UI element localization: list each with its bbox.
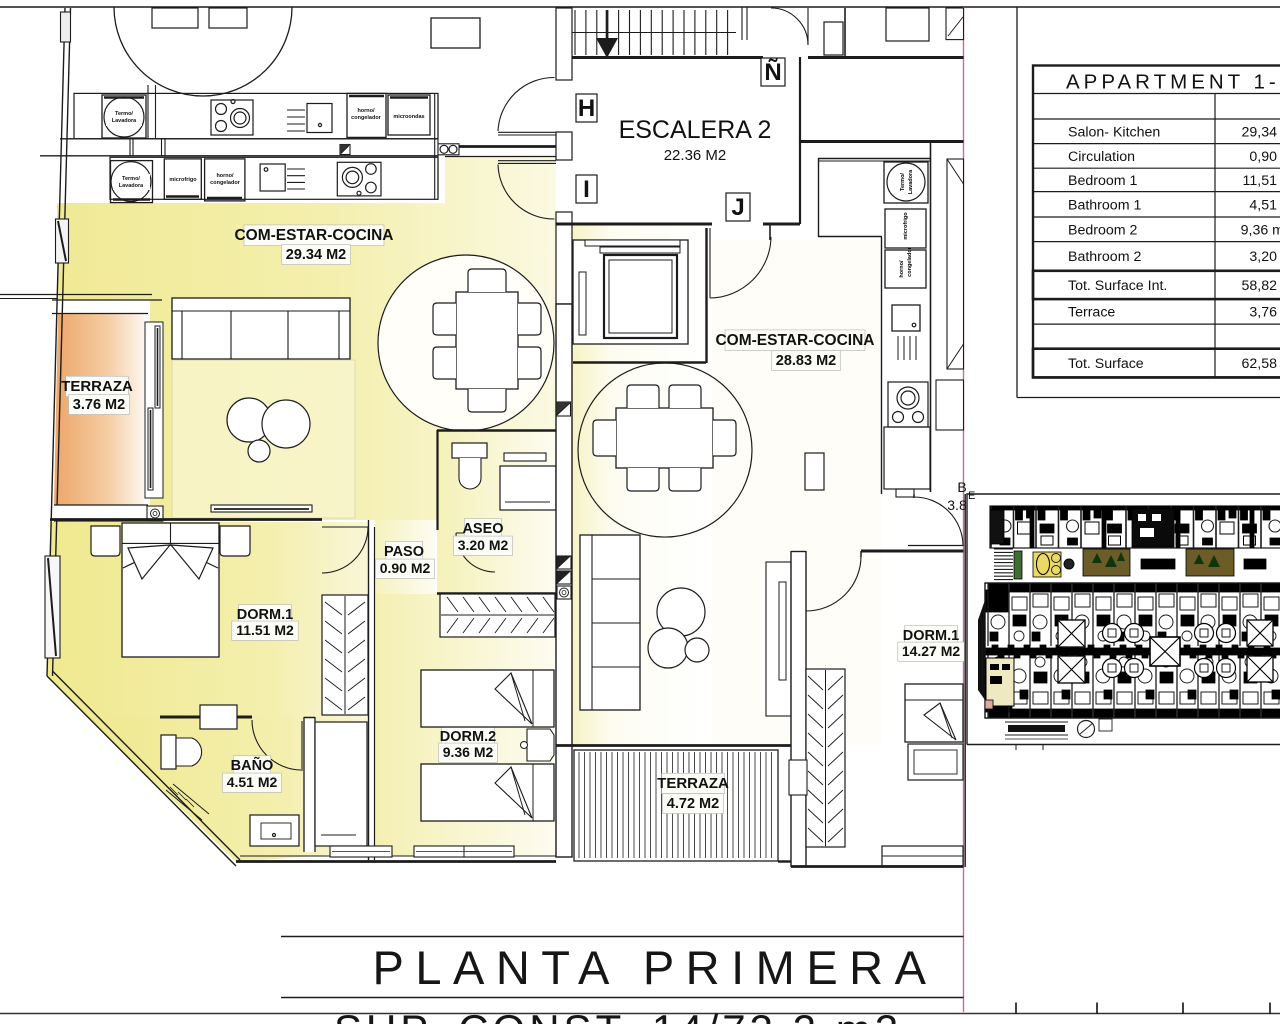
svg-text:Termo/: Termo/ bbox=[115, 111, 133, 117]
svg-text:TERRAZA: TERRAZA bbox=[61, 378, 133, 395]
svg-text:Ñ: Ñ bbox=[764, 58, 781, 86]
svg-text:congelador: congelador bbox=[351, 115, 382, 121]
svg-text:Termo/: Termo/ bbox=[122, 176, 140, 182]
svg-text:Bedroom 2: Bedroom 2 bbox=[1068, 222, 1138, 238]
svg-text:Terrace: Terrace bbox=[1068, 305, 1115, 321]
svg-text:DORM.1: DORM.1 bbox=[903, 628, 959, 644]
svg-text:B: B bbox=[957, 479, 966, 495]
svg-text:3.76 M2: 3.76 M2 bbox=[73, 397, 125, 413]
svg-text:4,51: 4,51 bbox=[1249, 197, 1277, 213]
svg-text:congelador: congelador bbox=[907, 246, 913, 277]
svg-text:3,20: 3,20 bbox=[1249, 249, 1277, 265]
svg-text:I: I bbox=[583, 176, 590, 203]
svg-text:0,90: 0,90 bbox=[1249, 149, 1277, 165]
svg-text:PASO: PASO bbox=[384, 544, 424, 560]
svg-text:3.8: 3.8 bbox=[947, 497, 967, 513]
svg-text:SUP. CONST. 14/73,2 m2: SUP. CONST. 14/73,2 m2 bbox=[334, 1006, 902, 1024]
svg-text:Termo/: Termo/ bbox=[900, 173, 906, 191]
svg-text:microfrigo: microfrigo bbox=[903, 212, 909, 240]
svg-text:22.36 M2: 22.36 M2 bbox=[664, 147, 727, 164]
svg-text:9,36 m: 9,36 m bbox=[1241, 222, 1280, 238]
svg-text:TERRAZA: TERRAZA bbox=[657, 775, 729, 792]
svg-text:BAÑO: BAÑO bbox=[231, 756, 274, 774]
svg-text:Circulation: Circulation bbox=[1068, 149, 1135, 165]
svg-text:58,82: 58,82 bbox=[1241, 278, 1277, 294]
svg-text:COM-ESTAR-COCINA: COM-ESTAR-COCINA bbox=[715, 332, 874, 349]
svg-text:14.27 M2: 14.27 M2 bbox=[902, 643, 961, 659]
svg-text:E: E bbox=[968, 490, 975, 502]
svg-text:11.51 M2: 11.51 M2 bbox=[236, 622, 294, 638]
svg-text:Tot. Surface Int.: Tot. Surface Int. bbox=[1068, 278, 1167, 294]
svg-text:Lavadora: Lavadora bbox=[112, 118, 137, 124]
svg-text:9.36 M2: 9.36 M2 bbox=[443, 744, 494, 760]
svg-text:Lavadora: Lavadora bbox=[119, 183, 144, 189]
svg-text:PLANTA PRIMERA: PLANTA PRIMERA bbox=[373, 941, 938, 994]
svg-text:29.34 M2: 29.34 M2 bbox=[286, 247, 346, 263]
svg-text:COM-ESTAR-COCINA: COM-ESTAR-COCINA bbox=[234, 227, 393, 244]
svg-text:4.51 M2: 4.51 M2 bbox=[227, 774, 278, 790]
svg-text:0.90 M2: 0.90 M2 bbox=[380, 560, 431, 576]
svg-text:Bathroom 1: Bathroom 1 bbox=[1068, 197, 1141, 213]
svg-text:Bedroom 1: Bedroom 1 bbox=[1068, 173, 1138, 189]
svg-text:horno/: horno/ bbox=[357, 108, 375, 114]
svg-text:11,51: 11,51 bbox=[1243, 173, 1278, 189]
svg-text:H: H bbox=[578, 95, 595, 122]
svg-text:congelador: congelador bbox=[210, 180, 241, 186]
svg-text:microondas: microondas bbox=[393, 114, 424, 120]
svg-text:horno/: horno/ bbox=[899, 260, 905, 278]
svg-text:microfrigo: microfrigo bbox=[169, 177, 197, 183]
svg-text:4.72 M2: 4.72 M2 bbox=[667, 796, 719, 812]
svg-text:ESCALERA 2: ESCALERA 2 bbox=[619, 116, 772, 144]
svg-text:APPARTMENT 1-2: APPARTMENT 1-2 bbox=[1066, 71, 1280, 94]
svg-text:29,34: 29,34 bbox=[1241, 124, 1277, 140]
svg-text:Tot. Surface: Tot. Surface bbox=[1068, 356, 1144, 372]
svg-text:28.83 M2: 28.83 M2 bbox=[776, 353, 836, 369]
svg-text:DORM.1: DORM.1 bbox=[237, 607, 293, 623]
svg-text:horno/: horno/ bbox=[216, 173, 234, 179]
svg-text:Bathroom 2: Bathroom 2 bbox=[1068, 249, 1141, 265]
svg-text:DORM.2: DORM.2 bbox=[440, 729, 496, 745]
svg-text:J: J bbox=[731, 194, 744, 221]
svg-text:ASEO: ASEO bbox=[462, 521, 503, 537]
svg-text:Lavadora: Lavadora bbox=[908, 169, 914, 194]
svg-text:3,76: 3,76 bbox=[1249, 305, 1277, 321]
svg-text:Salon- Kitchen: Salon- Kitchen bbox=[1068, 124, 1160, 140]
svg-text:62,58: 62,58 bbox=[1241, 356, 1277, 372]
svg-text:3.20 M2: 3.20 M2 bbox=[458, 537, 509, 553]
